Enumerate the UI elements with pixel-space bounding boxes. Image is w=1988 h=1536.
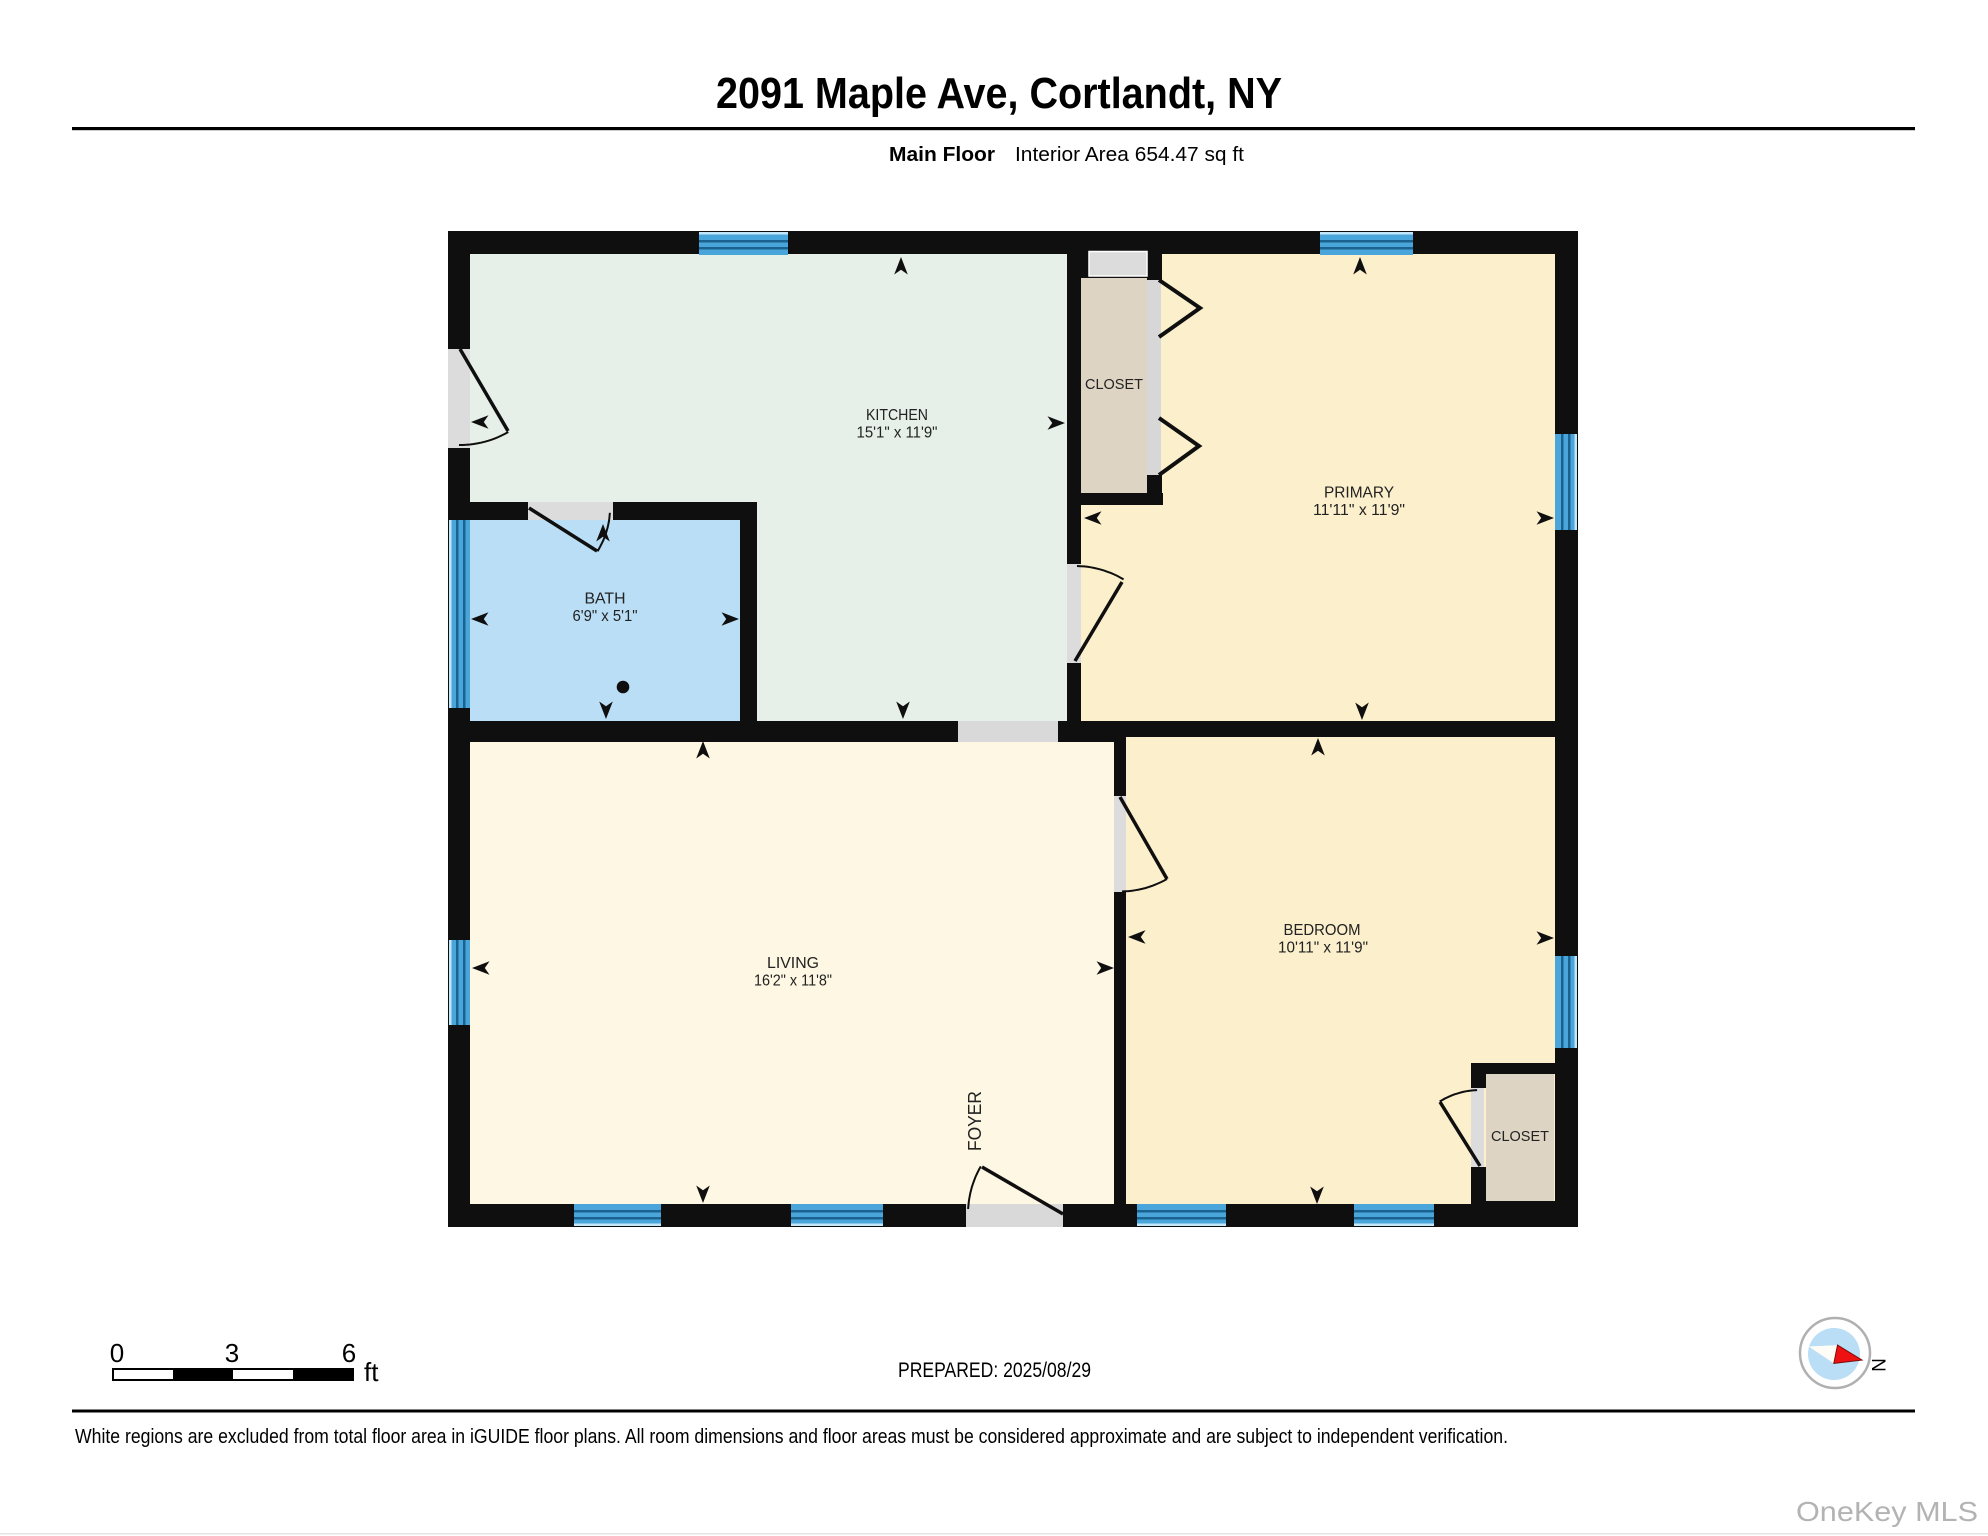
svg-text:BEDROOM: BEDROOM [1284, 922, 1361, 939]
svg-text:11'11" x 11'9": 11'11" x 11'9" [1313, 502, 1405, 519]
svg-text:Main Floor: Main Floor [889, 144, 995, 166]
svg-text:16'2" x 11'8": 16'2" x 11'8" [754, 973, 832, 990]
svg-text:N: N [1867, 1358, 1888, 1372]
svg-text:6: 6 [342, 1338, 356, 1368]
svg-text:FOYER: FOYER [965, 1091, 985, 1151]
svg-text:PRIMARY: PRIMARY [1324, 485, 1394, 502]
svg-text:BATH: BATH [585, 591, 626, 608]
svg-text:3: 3 [225, 1338, 239, 1368]
svg-text:6'9" x 5'1": 6'9" x 5'1" [573, 608, 638, 625]
svg-text:10'11" x 11'9": 10'11" x 11'9" [1278, 940, 1368, 957]
svg-text:Interior Area 654.47 sq ft: Interior Area 654.47 sq ft [1015, 144, 1244, 166]
svg-text:LIVING: LIVING [767, 955, 819, 972]
svg-text:CLOSET: CLOSET [1491, 1129, 1549, 1145]
svg-text:CLOSET: CLOSET [1085, 377, 1143, 393]
svg-text:0: 0 [110, 1338, 124, 1368]
svg-text:PREPARED: 2025/08/29: PREPARED: 2025/08/29 [898, 1359, 1091, 1382]
svg-text:15'1" x 11'9": 15'1" x 11'9" [857, 425, 938, 442]
svg-text:2091 Maple Ave, Cortlandt, NY: 2091 Maple Ave, Cortlandt, NY [716, 69, 1282, 118]
svg-text:OneKey MLS: OneKey MLS [1796, 1496, 1978, 1527]
svg-text:ft: ft [364, 1357, 379, 1387]
svg-text:White regions are excluded fro: White regions are excluded from total fl… [75, 1426, 1508, 1448]
svg-text:KITCHEN: KITCHEN [866, 407, 928, 424]
